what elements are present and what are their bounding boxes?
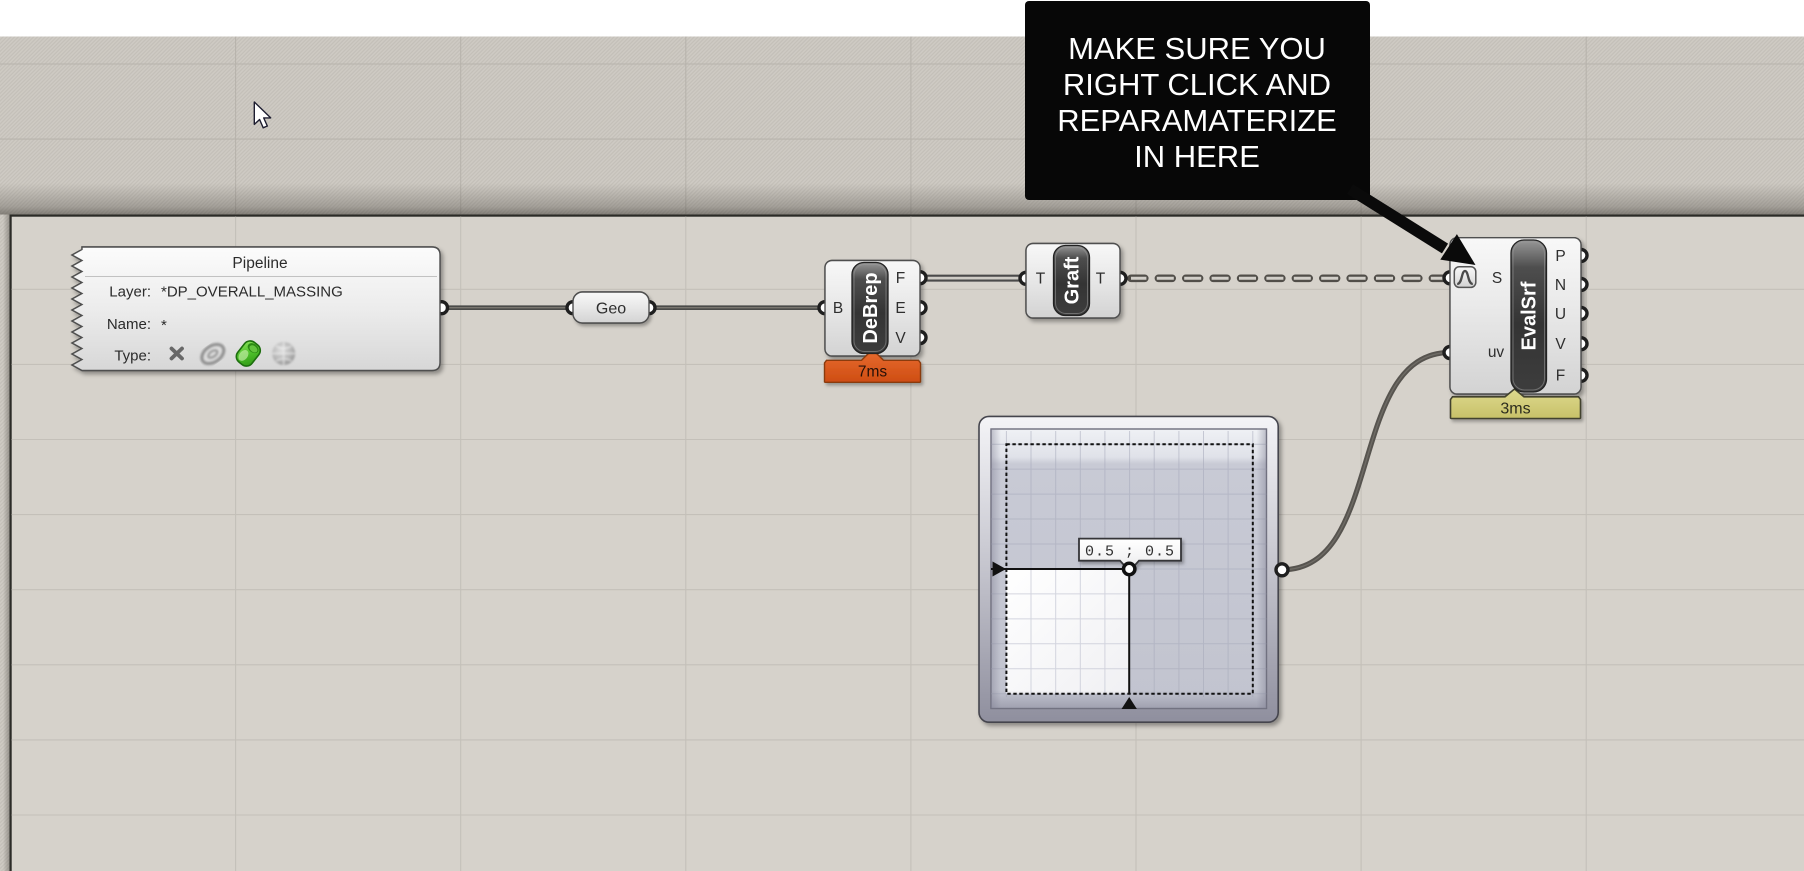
svg-text:EvalSrf: EvalSrf — [1519, 281, 1541, 350]
svg-text:IN HERE: IN HERE — [1134, 139, 1260, 174]
svg-text:Pipeline: Pipeline — [232, 255, 287, 272]
svg-text:V: V — [895, 330, 906, 347]
svg-text:S: S — [1492, 270, 1502, 287]
svg-text:Geo: Geo — [596, 301, 626, 318]
svg-text:P: P — [1555, 248, 1565, 265]
svg-text:RIGHT CLICK AND: RIGHT CLICK AND — [1063, 67, 1331, 102]
svg-text:REPARAMATERIZE: REPARAMATERIZE — [1057, 103, 1337, 138]
svg-text:N: N — [1555, 277, 1566, 294]
svg-text:Graft: Graft — [1062, 256, 1084, 304]
svg-text:*DP_OVERALL_MASSING: *DP_OVERALL_MASSING — [161, 284, 343, 301]
svg-text:V: V — [1555, 336, 1566, 353]
svg-text:Name:: Name: — [107, 316, 151, 333]
svg-text:DeBrep: DeBrep — [860, 272, 882, 343]
svg-text:Layer:: Layer: — [109, 284, 151, 301]
svg-text:F: F — [1556, 368, 1565, 385]
svg-text:*: * — [161, 317, 167, 334]
svg-text:uv: uv — [1488, 344, 1505, 361]
svg-text:3ms: 3ms — [1500, 401, 1530, 418]
svg-text:T: T — [1036, 271, 1046, 288]
svg-text:MAKE SURE YOU: MAKE SURE YOU — [1068, 31, 1326, 66]
svg-text:B: B — [833, 300, 843, 317]
svg-text:T: T — [1096, 271, 1106, 288]
svg-text:E: E — [895, 300, 905, 317]
svg-text:0.5 ; 0.5: 0.5 ; 0.5 — [1085, 544, 1175, 561]
svg-text:7ms: 7ms — [858, 364, 888, 381]
svg-text:F: F — [896, 270, 905, 287]
svg-text:Type:: Type: — [114, 348, 151, 365]
svg-text:U: U — [1555, 306, 1566, 323]
